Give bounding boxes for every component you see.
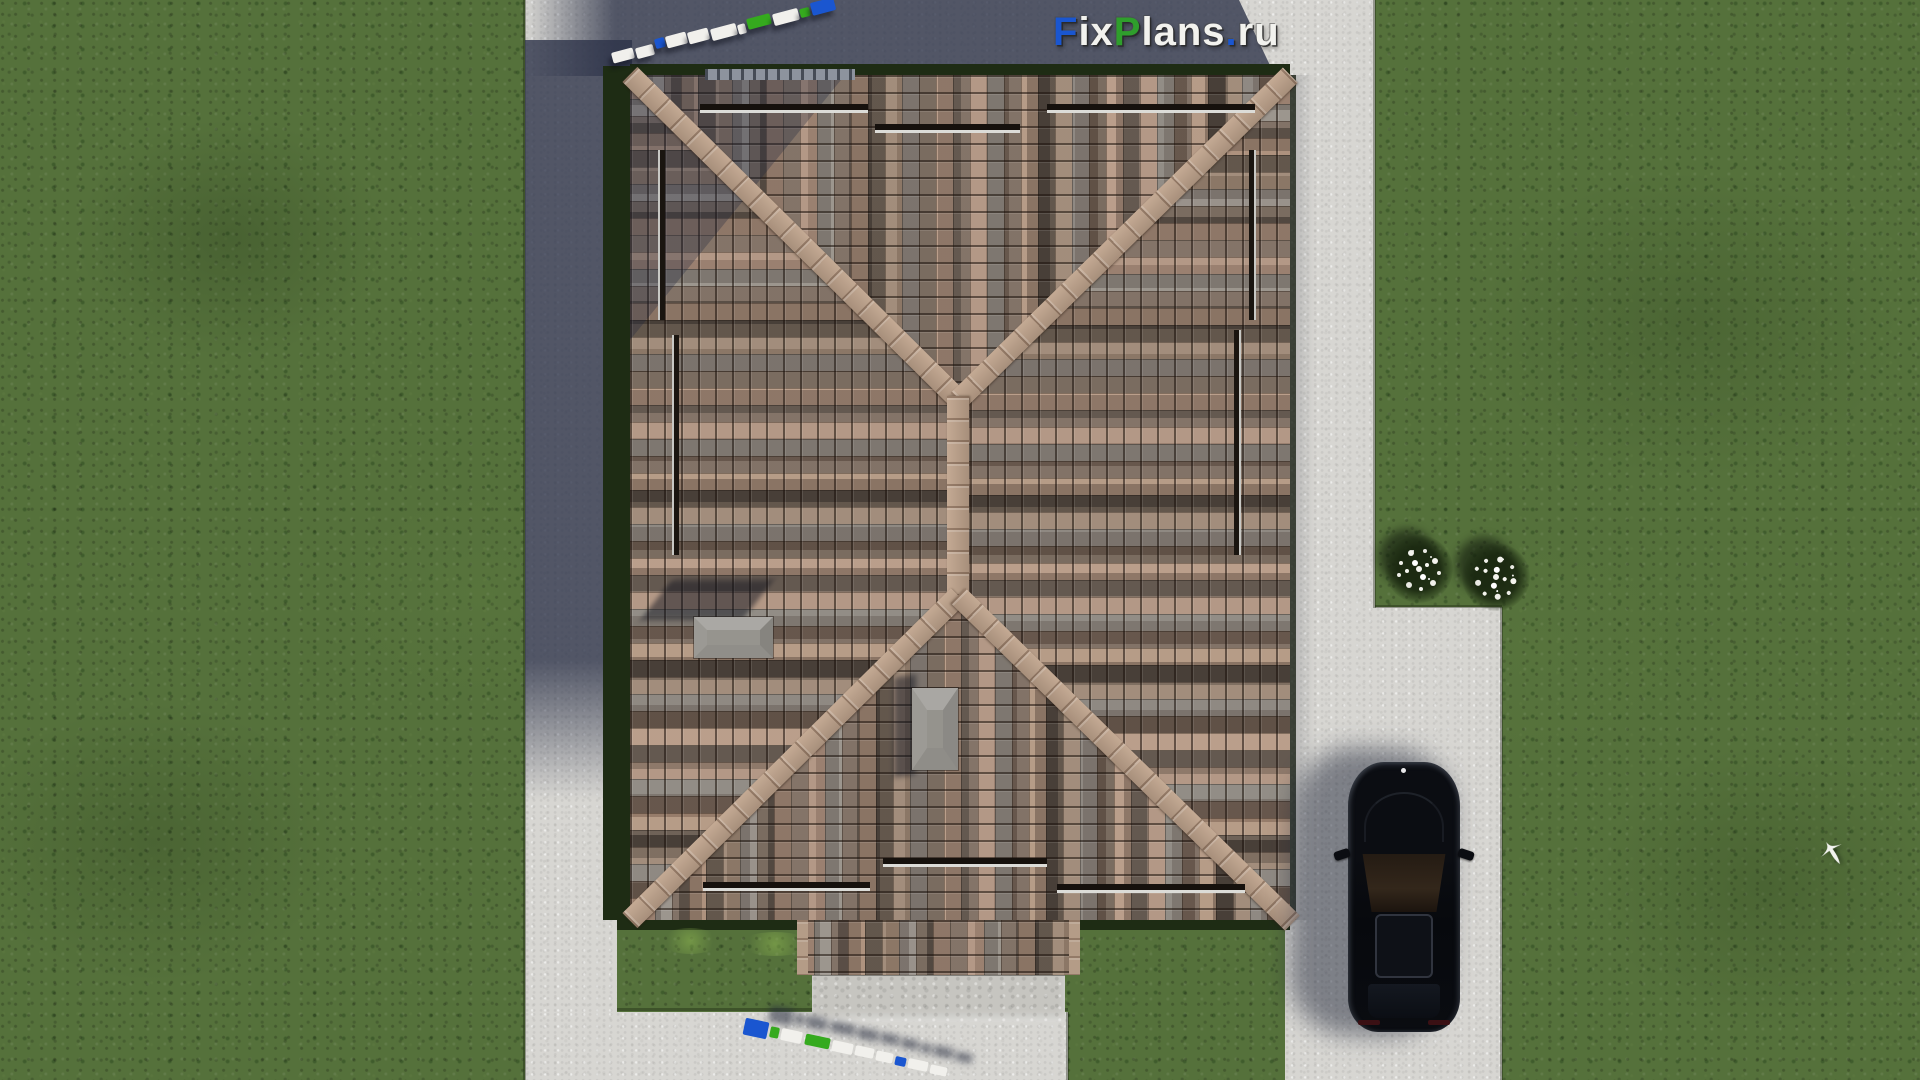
parked-car <box>1348 762 1460 1032</box>
bottom-path-right-edge <box>1066 1012 1069 1080</box>
flower-petals <box>1416 566 1422 572</box>
watermark-logo: FixPlans.ru <box>1053 10 1280 55</box>
porch-ridge-right <box>1069 920 1080 975</box>
watermark-letter: ru <box>1238 10 1280 54</box>
car-taillight-left <box>1358 1020 1380 1025</box>
porch-ridge-left <box>797 920 808 975</box>
concrete-path-bottom <box>525 1012 1068 1080</box>
watermark-letter: P <box>1114 10 1142 54</box>
snow-guard-bottom-middle <box>883 858 1047 867</box>
aerial-house-render: FixPlans.ru <box>0 0 1920 1080</box>
driveway-right-edge <box>1500 607 1503 1080</box>
watermark-letter: . <box>1226 10 1238 54</box>
hedge-left <box>603 66 630 920</box>
snow-guard-east-lower <box>1234 330 1241 555</box>
snow-guard-bottom-right <box>1057 884 1245 893</box>
terrace-slab <box>812 973 1065 1022</box>
eave-vent-strip <box>705 69 855 80</box>
chimney-cap-tall <box>912 688 958 770</box>
car-taillight-right <box>1428 1020 1450 1025</box>
watermark-letter: lans <box>1141 10 1225 54</box>
snow-guard-west-lower <box>672 335 679 555</box>
flower-bush <box>1385 535 1453 603</box>
flower-bush <box>1462 543 1530 611</box>
snow-guard-east-upper <box>1249 150 1256 320</box>
snow-guard-bottom-left <box>703 882 870 891</box>
porch-roof <box>797 920 1080 975</box>
car-antenna-dot <box>1401 768 1406 773</box>
path-grass-edge <box>1373 0 1376 608</box>
chimney-cap-wide <box>694 617 773 658</box>
snow-guard-top-right <box>1047 104 1255 113</box>
snow-guard-west-upper <box>658 150 665 320</box>
center-ridge <box>947 396 969 600</box>
car-windshield <box>1359 854 1449 912</box>
car-sunroof <box>1375 914 1433 978</box>
snow-guard-top-middle <box>875 124 1020 133</box>
snow-guard-top-left <box>700 104 868 113</box>
car-rear-window <box>1368 984 1440 1018</box>
watermark-letter: F <box>1053 10 1078 54</box>
watermark-letter: ix <box>1078 10 1113 54</box>
